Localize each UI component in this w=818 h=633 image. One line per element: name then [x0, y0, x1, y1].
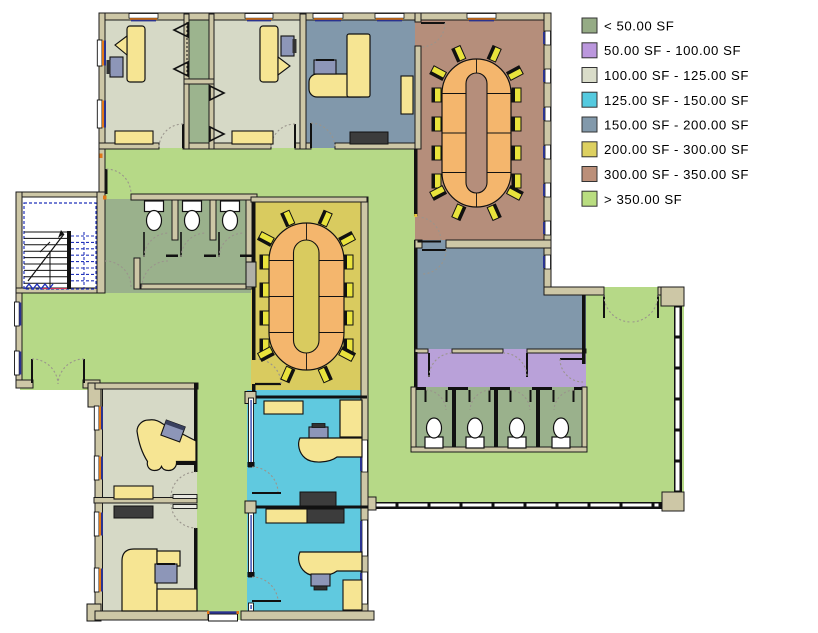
svg-text:50.00 SF - 100.00 SF: 50.00 SF - 100.00 SF — [604, 43, 741, 58]
svg-text:100.00 SF - 125.00 SF: 100.00 SF - 125.00 SF — [604, 68, 749, 83]
svg-text:> 350.00 SF: > 350.00 SF — [604, 192, 682, 207]
svg-text:150.00 SF - 200.00 SF: 150.00 SF - 200.00 SF — [604, 118, 749, 133]
svg-text:300.00 SF - 350.00 SF: 300.00 SF - 350.00 SF — [604, 167, 749, 182]
svg-text:< 50.00 SF: < 50.00 SF — [604, 19, 674, 34]
svg-text:125.00 SF - 150.00 SF: 125.00 SF - 150.00 SF — [604, 93, 749, 108]
svg-text:200.00 SF - 300.00 SF: 200.00 SF - 300.00 SF — [604, 142, 749, 157]
